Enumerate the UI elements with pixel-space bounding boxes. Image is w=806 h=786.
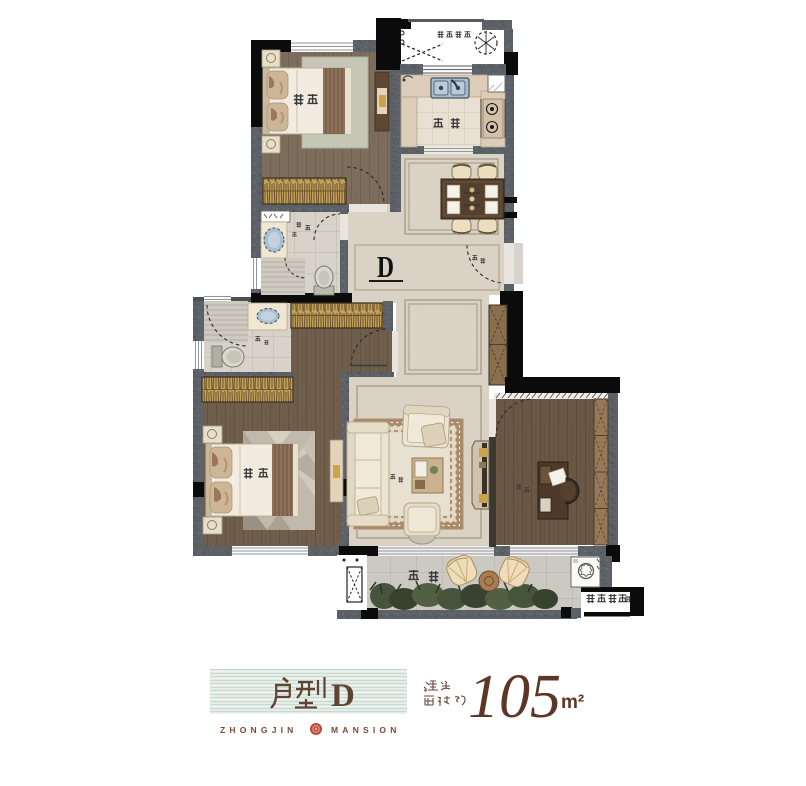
svg-text:D: D	[331, 678, 355, 714]
svg-text:MANSION: MANSION	[331, 725, 401, 735]
svg-text:ZHONGJIN: ZHONGJIN	[220, 725, 298, 735]
svg-text:D: D	[377, 249, 394, 284]
svg-text:m²: m²	[561, 692, 584, 713]
svg-text:105: 105	[468, 663, 561, 731]
